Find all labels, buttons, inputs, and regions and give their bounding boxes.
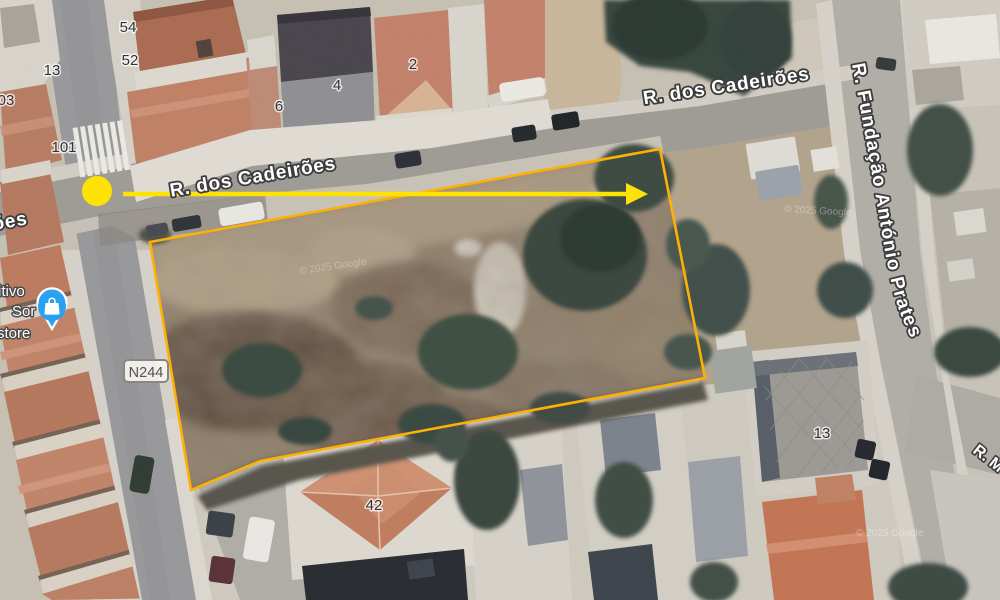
svg-text:Sor: Sor [12,303,35,320]
svg-text:13: 13 [814,425,831,442]
svg-text:13: 13 [44,62,61,79]
svg-text:42: 42 [366,497,383,514]
svg-text:N244: N244 [129,365,164,381]
svg-text:itivo: itivo [0,283,25,300]
svg-text:store: store [0,325,30,342]
svg-text:54: 54 [120,19,137,36]
svg-text:52: 52 [122,52,139,69]
svg-text:2: 2 [409,56,417,73]
svg-text:4: 4 [333,77,341,94]
svg-text:101: 101 [51,139,76,156]
svg-text:03: 03 [0,92,14,109]
svg-text:6: 6 [275,98,283,115]
svg-text:© 2025 Google: © 2025 Google [856,528,924,539]
